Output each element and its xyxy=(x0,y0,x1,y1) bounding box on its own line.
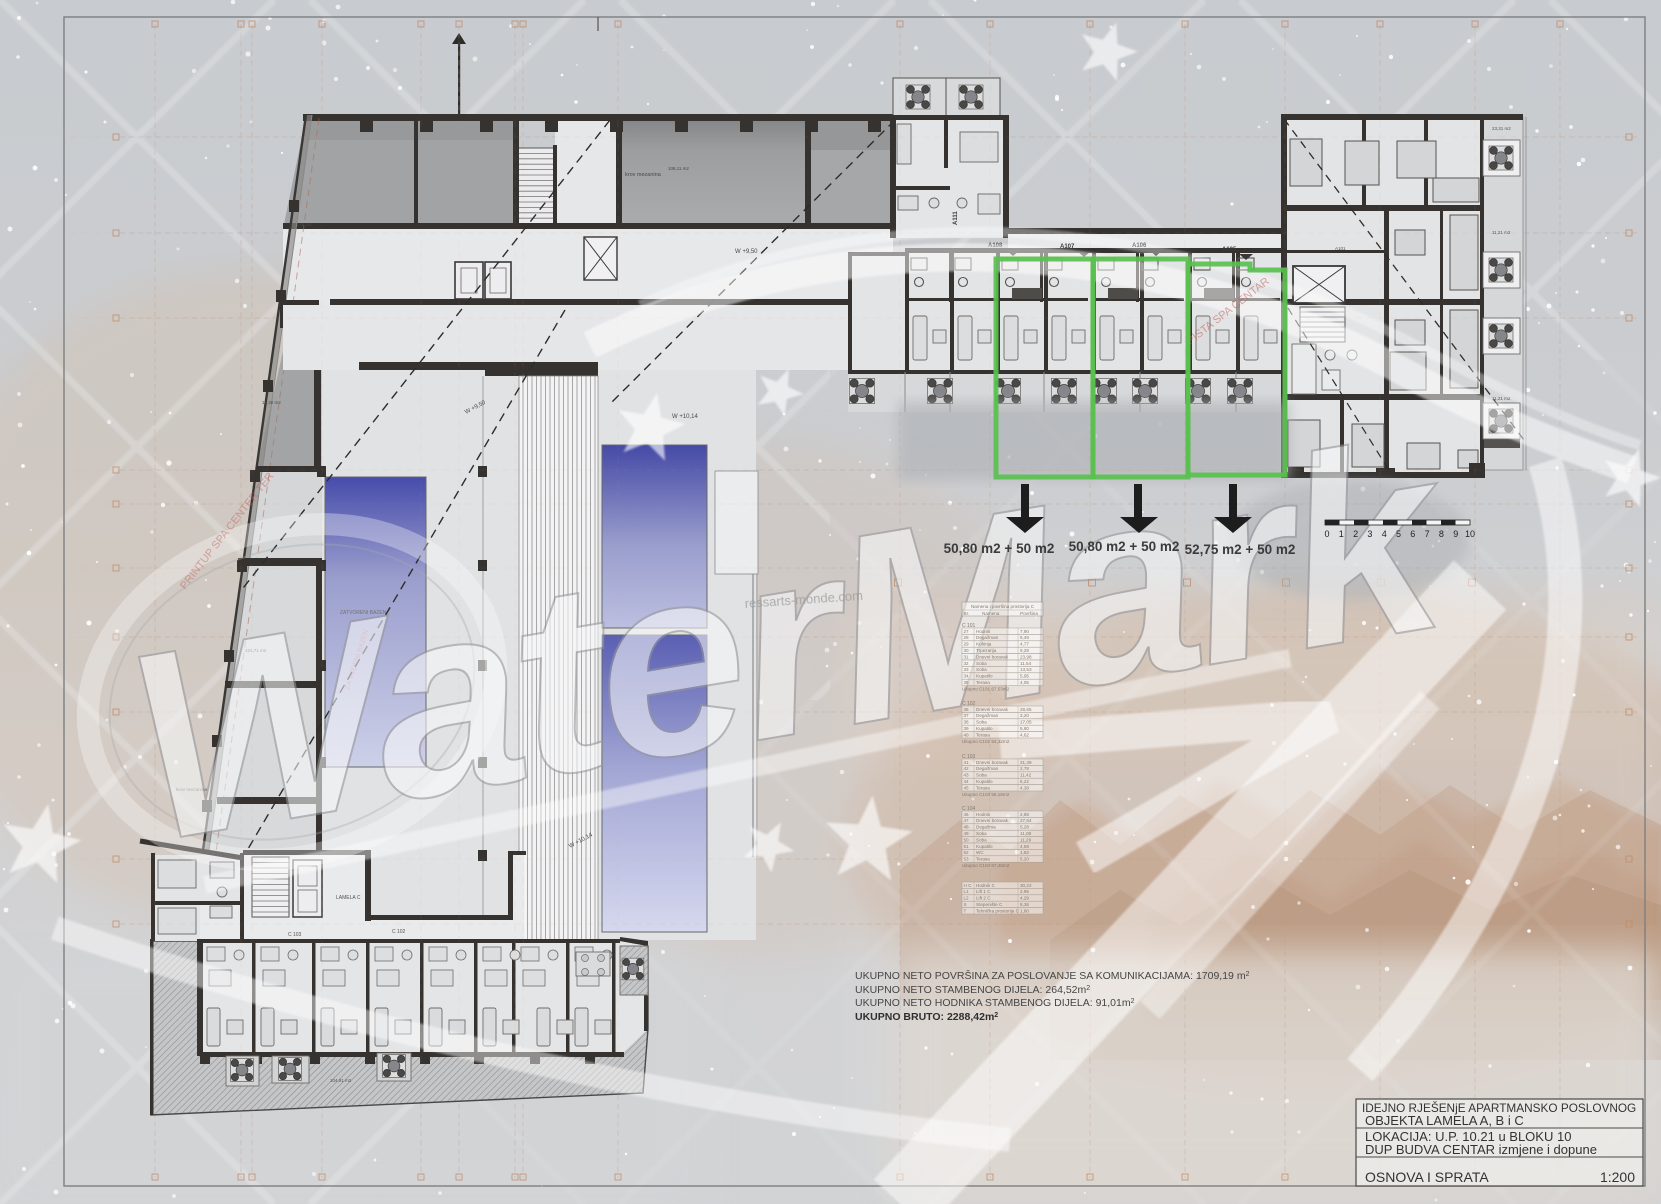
svg-text:23,31 m2: 23,31 m2 xyxy=(1492,126,1511,131)
svg-text:17,05: 17,05 xyxy=(1020,720,1032,725)
svg-text:33: 33 xyxy=(964,667,970,672)
svg-text:2,95: 2,95 xyxy=(1020,889,1029,894)
svg-text:W +10,14: W +10,14 xyxy=(672,414,699,420)
svg-text:Dnevni boravak: Dnevni boravak xyxy=(976,707,1009,712)
svg-text:108,11 m2: 108,11 m2 xyxy=(668,166,689,171)
svg-text:W +9,50: W +9,50 xyxy=(735,249,758,255)
svg-text:45: 45 xyxy=(964,785,970,790)
svg-text:35: 35 xyxy=(964,680,970,685)
svg-text:28,65: 28,65 xyxy=(1020,707,1032,712)
svg-text:Trpezarija: Trpezarija xyxy=(976,648,997,653)
svg-text:UKUPNO NETO POVRŠINA ZA POSLOV: UKUPNO NETO POVRŠINA ZA POSLOVANJE SA KO… xyxy=(855,969,1250,982)
svg-text:1: 1 xyxy=(1339,529,1344,539)
svg-text:Soba: Soba xyxy=(976,667,987,672)
svg-text:30,22: 30,22 xyxy=(1020,883,1032,888)
svg-text:Terasa: Terasa xyxy=(976,732,990,737)
svg-text:23,98: 23,98 xyxy=(1020,654,1032,659)
svg-text:4,05: 4,05 xyxy=(1020,680,1029,685)
svg-text:40: 40 xyxy=(964,732,970,737)
svg-text:32: 32 xyxy=(964,661,970,666)
svg-text:A101: A101 xyxy=(1335,246,1346,251)
svg-text:Kupatilo: Kupatilo xyxy=(976,674,993,679)
svg-text:48: 48 xyxy=(964,825,970,830)
svg-text:0: 0 xyxy=(1324,529,1329,539)
svg-text:51: 51 xyxy=(964,844,970,849)
svg-text:16,30 m2: 16,30 m2 xyxy=(262,400,281,405)
svg-text:Soba: Soba xyxy=(976,661,987,666)
svg-text:Dnevni boravak: Dnevni boravak xyxy=(976,654,1009,659)
svg-text:46: 46 xyxy=(964,812,970,817)
svg-text:44: 44 xyxy=(964,779,970,784)
svg-text:Ukupno C104 67,48m2: Ukupno C104 67,48m2 xyxy=(962,863,1010,868)
svg-text:Stepenište C: Stepenište C xyxy=(976,902,1003,907)
svg-text:5,95: 5,95 xyxy=(1020,674,1029,679)
svg-text:Lift 2 C: Lift 2 C xyxy=(976,896,991,901)
svg-text:WC: WC xyxy=(976,850,984,855)
svg-text:Hodnik C: Hodnik C xyxy=(976,883,996,888)
svg-text:3,68 m2: 3,68 m2 xyxy=(1493,443,1510,448)
svg-text:52,75 m2 + 50 m2: 52,75 m2 + 50 m2 xyxy=(1185,542,1296,557)
svg-text:C 103: C 103 xyxy=(288,932,302,938)
svg-text:5,20: 5,20 xyxy=(1020,857,1029,862)
svg-text:Degažman: Degažman xyxy=(976,766,999,771)
svg-text:Kupatilo: Kupatilo xyxy=(976,844,993,849)
svg-text:5,80: 5,80 xyxy=(1020,726,1029,731)
svg-text:1,80: 1,80 xyxy=(1020,908,1029,913)
svg-text:4,59: 4,59 xyxy=(1020,844,1029,849)
svg-text:8,36: 8,36 xyxy=(1020,902,1029,907)
svg-text:Degažman: Degažman xyxy=(976,713,999,718)
svg-text:30: 30 xyxy=(964,648,970,653)
svg-text:1,62: 1,62 xyxy=(1020,850,1029,855)
svg-text:L1: L1 xyxy=(964,889,970,894)
svg-text:31,39: 31,39 xyxy=(1020,760,1032,765)
svg-text:11,29: 11,29 xyxy=(1020,837,1032,842)
svg-text:34: 34 xyxy=(964,674,970,679)
svg-text:Terasa: Terasa xyxy=(976,680,990,685)
svg-text:9,28: 9,28 xyxy=(1020,648,1029,653)
svg-text:10: 10 xyxy=(1465,529,1475,539)
svg-text:6: 6 xyxy=(1410,529,1415,539)
svg-text:42: 42 xyxy=(964,766,970,771)
svg-text:2,78: 2,78 xyxy=(1020,766,1029,771)
svg-text:27: 27 xyxy=(964,629,970,634)
svg-text:Terasa: Terasa xyxy=(976,857,990,862)
svg-text:39: 39 xyxy=(964,726,970,731)
svg-text:7: 7 xyxy=(1425,529,1430,539)
svg-text:11,08: 11,08 xyxy=(1020,831,1032,836)
svg-text:Hodnik: Hodnik xyxy=(976,812,991,817)
svg-text:37: 37 xyxy=(964,713,970,718)
svg-text:1:200: 1:200 xyxy=(1600,1169,1635,1185)
svg-text:Degažma: Degažma xyxy=(976,825,996,830)
svg-text:104,91 m2: 104,91 m2 xyxy=(330,1078,352,1083)
svg-text:Terasa: Terasa xyxy=(976,785,990,790)
svg-text:Degažman: Degažman xyxy=(976,635,999,640)
svg-text:11,54: 11,54 xyxy=(1020,661,1032,666)
svg-text:T: T xyxy=(964,908,967,913)
svg-text:UKUPNO BRUTO: 2288,42m2: UKUPNO BRUTO: 2288,42m2 xyxy=(855,1011,998,1023)
svg-text:41: 41 xyxy=(964,760,970,765)
svg-text:4,62: 4,62 xyxy=(1020,732,1029,737)
svg-text:Soba: Soba xyxy=(976,720,987,725)
svg-text:S: S xyxy=(964,902,967,907)
svg-text:11,42: 11,42 xyxy=(1020,773,1032,778)
svg-text:Namena i površina prostorija C: Namena i površina prostorija C xyxy=(971,604,1035,609)
svg-text:50: 50 xyxy=(964,837,970,842)
svg-text:Br.: Br. xyxy=(964,611,970,616)
svg-text:3,20: 3,20 xyxy=(1020,713,1029,718)
svg-text:Lift 1 C: Lift 1 C xyxy=(976,889,991,894)
svg-text:9: 9 xyxy=(1453,529,1458,539)
svg-text:Ukupno C103 55,19m2: Ukupno C103 55,19m2 xyxy=(962,792,1010,797)
svg-text:8: 8 xyxy=(1439,529,1444,539)
svg-text:2: 2 xyxy=(1353,529,1358,539)
svg-text:Površina: Površina xyxy=(1020,611,1038,616)
svg-text:OSNOVA I SPRATA: OSNOVA I SPRATA xyxy=(1365,1169,1489,1185)
svg-text:krov mezanina: krov mezanina xyxy=(625,172,662,178)
svg-text:13,53: 13,53 xyxy=(1020,667,1032,672)
svg-text:OBJEKTA LAMELA A, B i C: OBJEKTA LAMELA A, B i C xyxy=(1365,1113,1524,1128)
svg-text:A105: A105 xyxy=(1222,247,1237,253)
svg-text:36: 36 xyxy=(964,707,970,712)
svg-text:UKUPNO NETO STAMBENOG DIJELA:: UKUPNO NETO STAMBENOG DIJELA: 264,52m2 xyxy=(855,984,1090,996)
svg-text:43: 43 xyxy=(964,773,970,778)
svg-text:LAMELA C: LAMELA C xyxy=(336,895,361,901)
svg-text:Tehnička prostorija C: Tehnička prostorija C xyxy=(976,908,1020,913)
svg-text:Soba: Soba xyxy=(976,837,987,842)
svg-text:27,54: 27,54 xyxy=(1020,818,1032,823)
svg-text:A111: A111 xyxy=(953,211,959,225)
svg-text:Dnevni boravak: Dnevni boravak xyxy=(976,818,1009,823)
svg-text:5,28: 5,28 xyxy=(1020,825,1029,830)
svg-text:UKUPNO NETO HODNIKA STAMBENOG: UKUPNO NETO HODNIKA STAMBENOG DIJELA: 91… xyxy=(855,997,1135,1009)
svg-text:52: 52 xyxy=(964,850,970,855)
svg-text:C 102: C 102 xyxy=(392,929,406,935)
svg-text:Namena: Namena xyxy=(982,611,1000,616)
svg-text:L2: L2 xyxy=(964,896,970,901)
svg-text:4: 4 xyxy=(1382,529,1387,539)
svg-text:Soba: Soba xyxy=(976,831,987,836)
svg-text:38: 38 xyxy=(964,720,970,725)
svg-text:DUP BUDVA CENTAR izmjene i dop: DUP BUDVA CENTAR izmjene i dopune xyxy=(1365,1142,1597,1157)
svg-text:5: 5 xyxy=(1396,529,1401,539)
svg-text:Ukupno C101 67,53m2: Ukupno C101 67,53m2 xyxy=(962,687,1010,692)
svg-text:Ukupno C102 54,32m2: Ukupno C102 54,32m2 xyxy=(962,739,1010,744)
svg-text:50,80 m2 + 50 m2: 50,80 m2 + 50 m2 xyxy=(1069,539,1180,554)
svg-text:47: 47 xyxy=(964,818,970,823)
svg-text:Soba: Soba xyxy=(976,773,987,778)
svg-text:3: 3 xyxy=(1367,529,1372,539)
svg-text:Kupatilo: Kupatilo xyxy=(976,726,993,731)
svg-text:Hodnik: Hodnik xyxy=(976,629,991,634)
svg-text:6,49: 6,49 xyxy=(1020,635,1029,640)
svg-text:Kupatilo: Kupatilo xyxy=(976,779,993,784)
svg-text:7,90: 7,90 xyxy=(1020,629,1029,634)
svg-text:31: 31 xyxy=(964,654,970,659)
svg-text:50,80 m2 + 50 m2: 50,80 m2 + 50 m2 xyxy=(944,541,1055,556)
svg-text:28: 28 xyxy=(964,635,970,640)
svg-text:11,21 m2: 11,21 m2 xyxy=(1492,230,1511,235)
svg-text:Dnevni boravak: Dnevni boravak xyxy=(976,760,1009,765)
svg-text:Kuhinja: Kuhinja xyxy=(976,642,992,647)
svg-text:29: 29 xyxy=(964,642,970,647)
svg-text:4,38: 4,38 xyxy=(1020,785,1029,790)
svg-text:49: 49 xyxy=(964,831,970,836)
svg-text:5,22: 5,22 xyxy=(1020,779,1029,784)
svg-text:H C: H C xyxy=(964,883,973,888)
svg-text:4,77: 4,77 xyxy=(1020,642,1029,647)
svg-text:2,88: 2,88 xyxy=(1020,812,1029,817)
svg-text:53: 53 xyxy=(964,857,970,862)
svg-text:4,29: 4,29 xyxy=(1020,896,1029,901)
